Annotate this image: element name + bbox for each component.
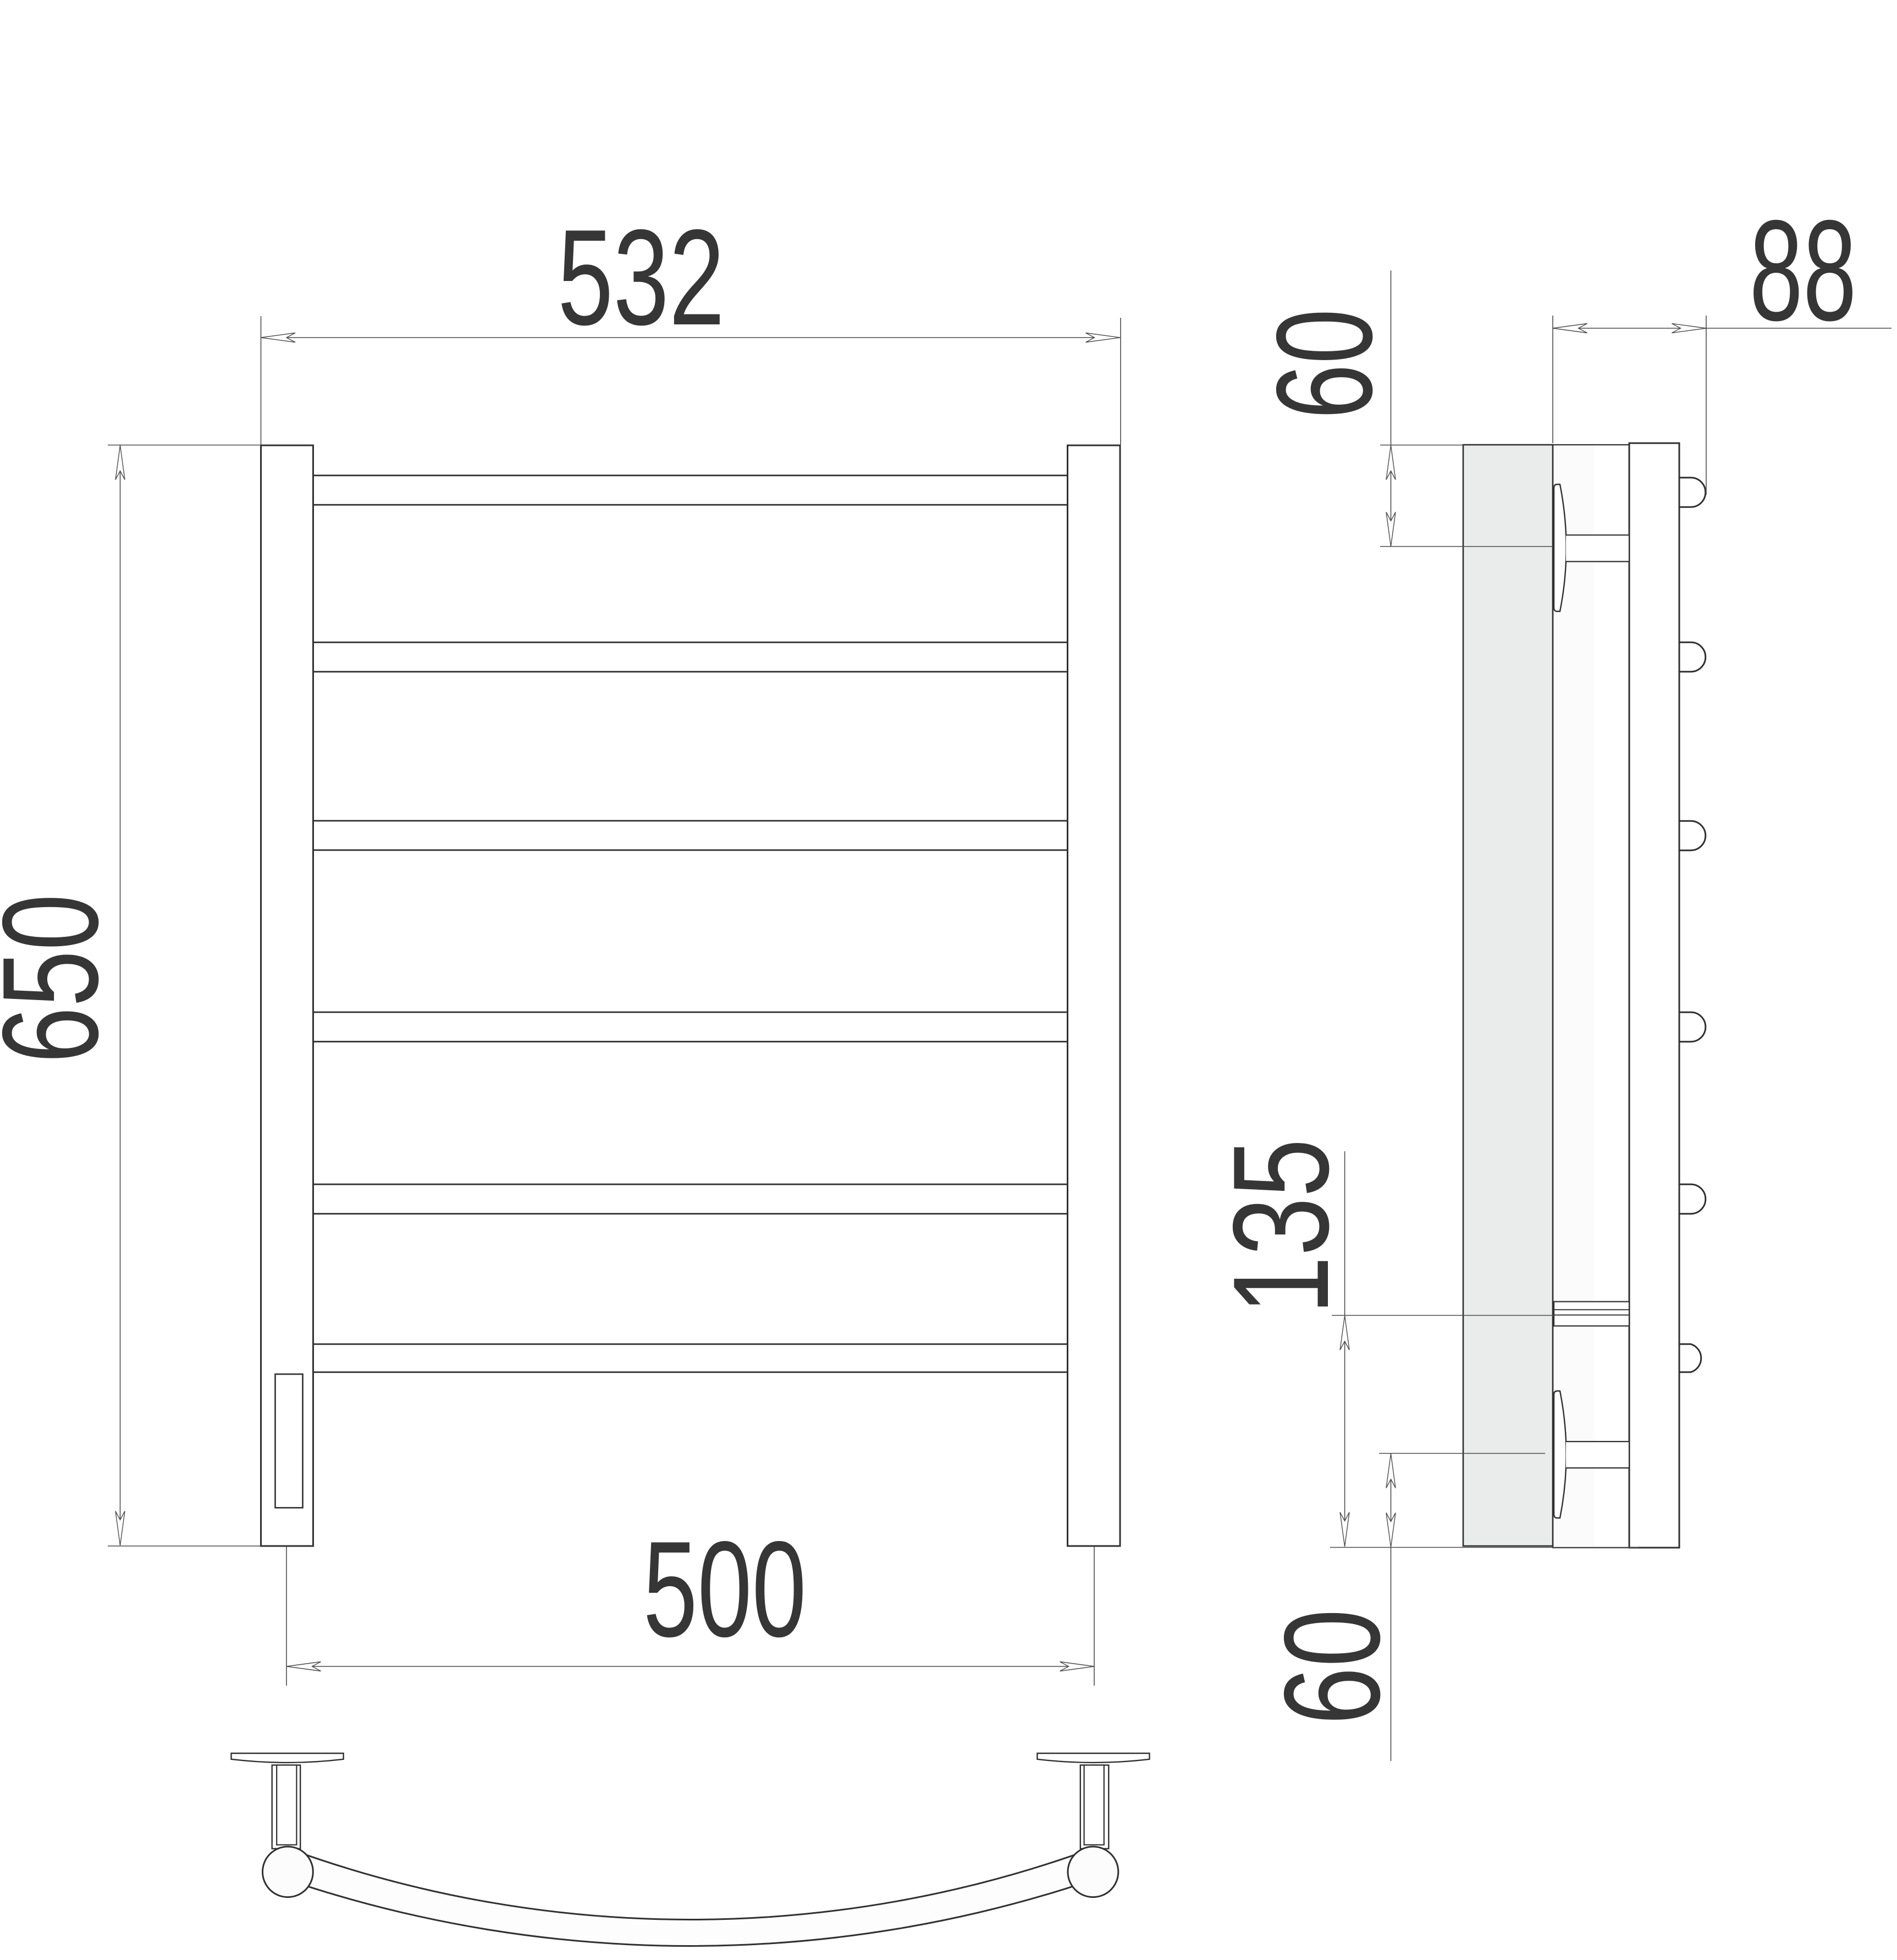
svg-text:650: 650: [0, 894, 126, 1063]
svg-text:500: 500: [643, 1512, 807, 1665]
svg-text:60: 60: [1255, 1609, 1408, 1725]
svg-text:532: 532: [558, 201, 725, 354]
svg-text:60: 60: [1248, 309, 1400, 419]
svg-text:135: 135: [1204, 1139, 1357, 1315]
svg-text:88: 88: [1750, 191, 1857, 351]
